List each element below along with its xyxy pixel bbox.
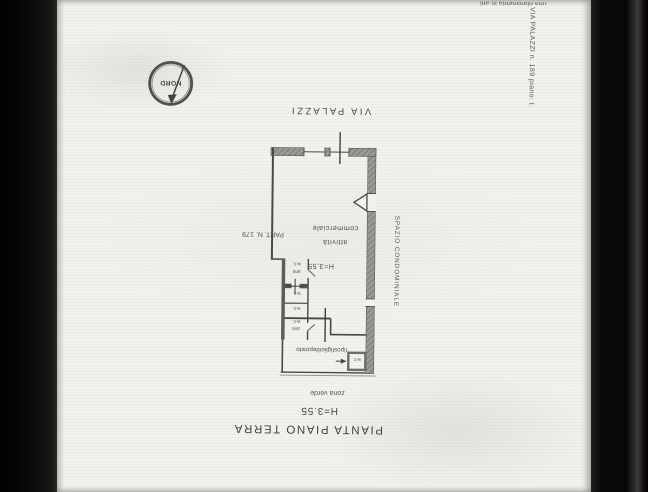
street-label: VIA PALAZZI — [290, 105, 372, 117]
left-exterior-wall — [366, 148, 376, 373]
entrance-door — [354, 193, 376, 211]
north-compass: NORD — [149, 62, 191, 104]
main-room-height: H=3.55 — [308, 262, 334, 271]
plan-sheet: PIANTA PIANO TERRA H=3.55 zona verde VIA… — [57, 0, 591, 492]
room-label: w.c. — [292, 318, 300, 323]
room-label: w.c. — [292, 290, 300, 295]
condo-space-label: SPAZIO CONDOMINIALE — [392, 216, 400, 307]
parcel-label: PART. N. 179 — [242, 230, 284, 237]
wc-column-exterior-wall — [281, 259, 285, 340]
main-room-label-1: attività — [323, 238, 348, 247]
black-border-right — [591, 0, 648, 492]
room-label: w.c. — [292, 305, 300, 310]
arrow-icon — [341, 359, 347, 364]
height-note: H=3.55 — [301, 405, 338, 416]
wc-column-labels: anti w.c. w.c. w.c. anti w.c. — [292, 261, 301, 332]
room-label: anti — [293, 268, 301, 274]
scan-photo: PIANTA PIANO TERRA H=3.55 zona verde VIA… — [0, 0, 648, 492]
right-wall — [272, 147, 273, 258]
left-wall-opening — [365, 299, 375, 307]
black-border-left — [0, 0, 57, 492]
wc-column-partition — [308, 259, 316, 340]
flipped-content: PIANTA PIANO TERRA H=3.55 zona verde VIA… — [57, 0, 591, 492]
main-room-label-2: commerciale — [312, 224, 358, 233]
corner-note: una planimetria in atti — [480, 0, 547, 6]
storage-label: ripostiglio/deposito — [296, 346, 348, 354]
compass-label: NORD — [160, 79, 182, 86]
storage-wc-label: w.c. — [353, 356, 361, 361]
green-zone-label: zona verde — [310, 389, 345, 396]
room-label: w.c. — [293, 261, 301, 266]
room-label: anti — [292, 325, 300, 331]
floor-plan-svg: PIANTA PIANO TERRA H=3.55 zona verde VIA… — [57, 0, 591, 492]
page-title: PIANTA PIANO TERRA — [233, 422, 383, 436]
plan-walls — [269, 131, 379, 376]
margin-note: VIA PALAZZI n. 189 piano: t. — [527, 7, 535, 107]
door-swing-icon — [354, 194, 367, 211]
